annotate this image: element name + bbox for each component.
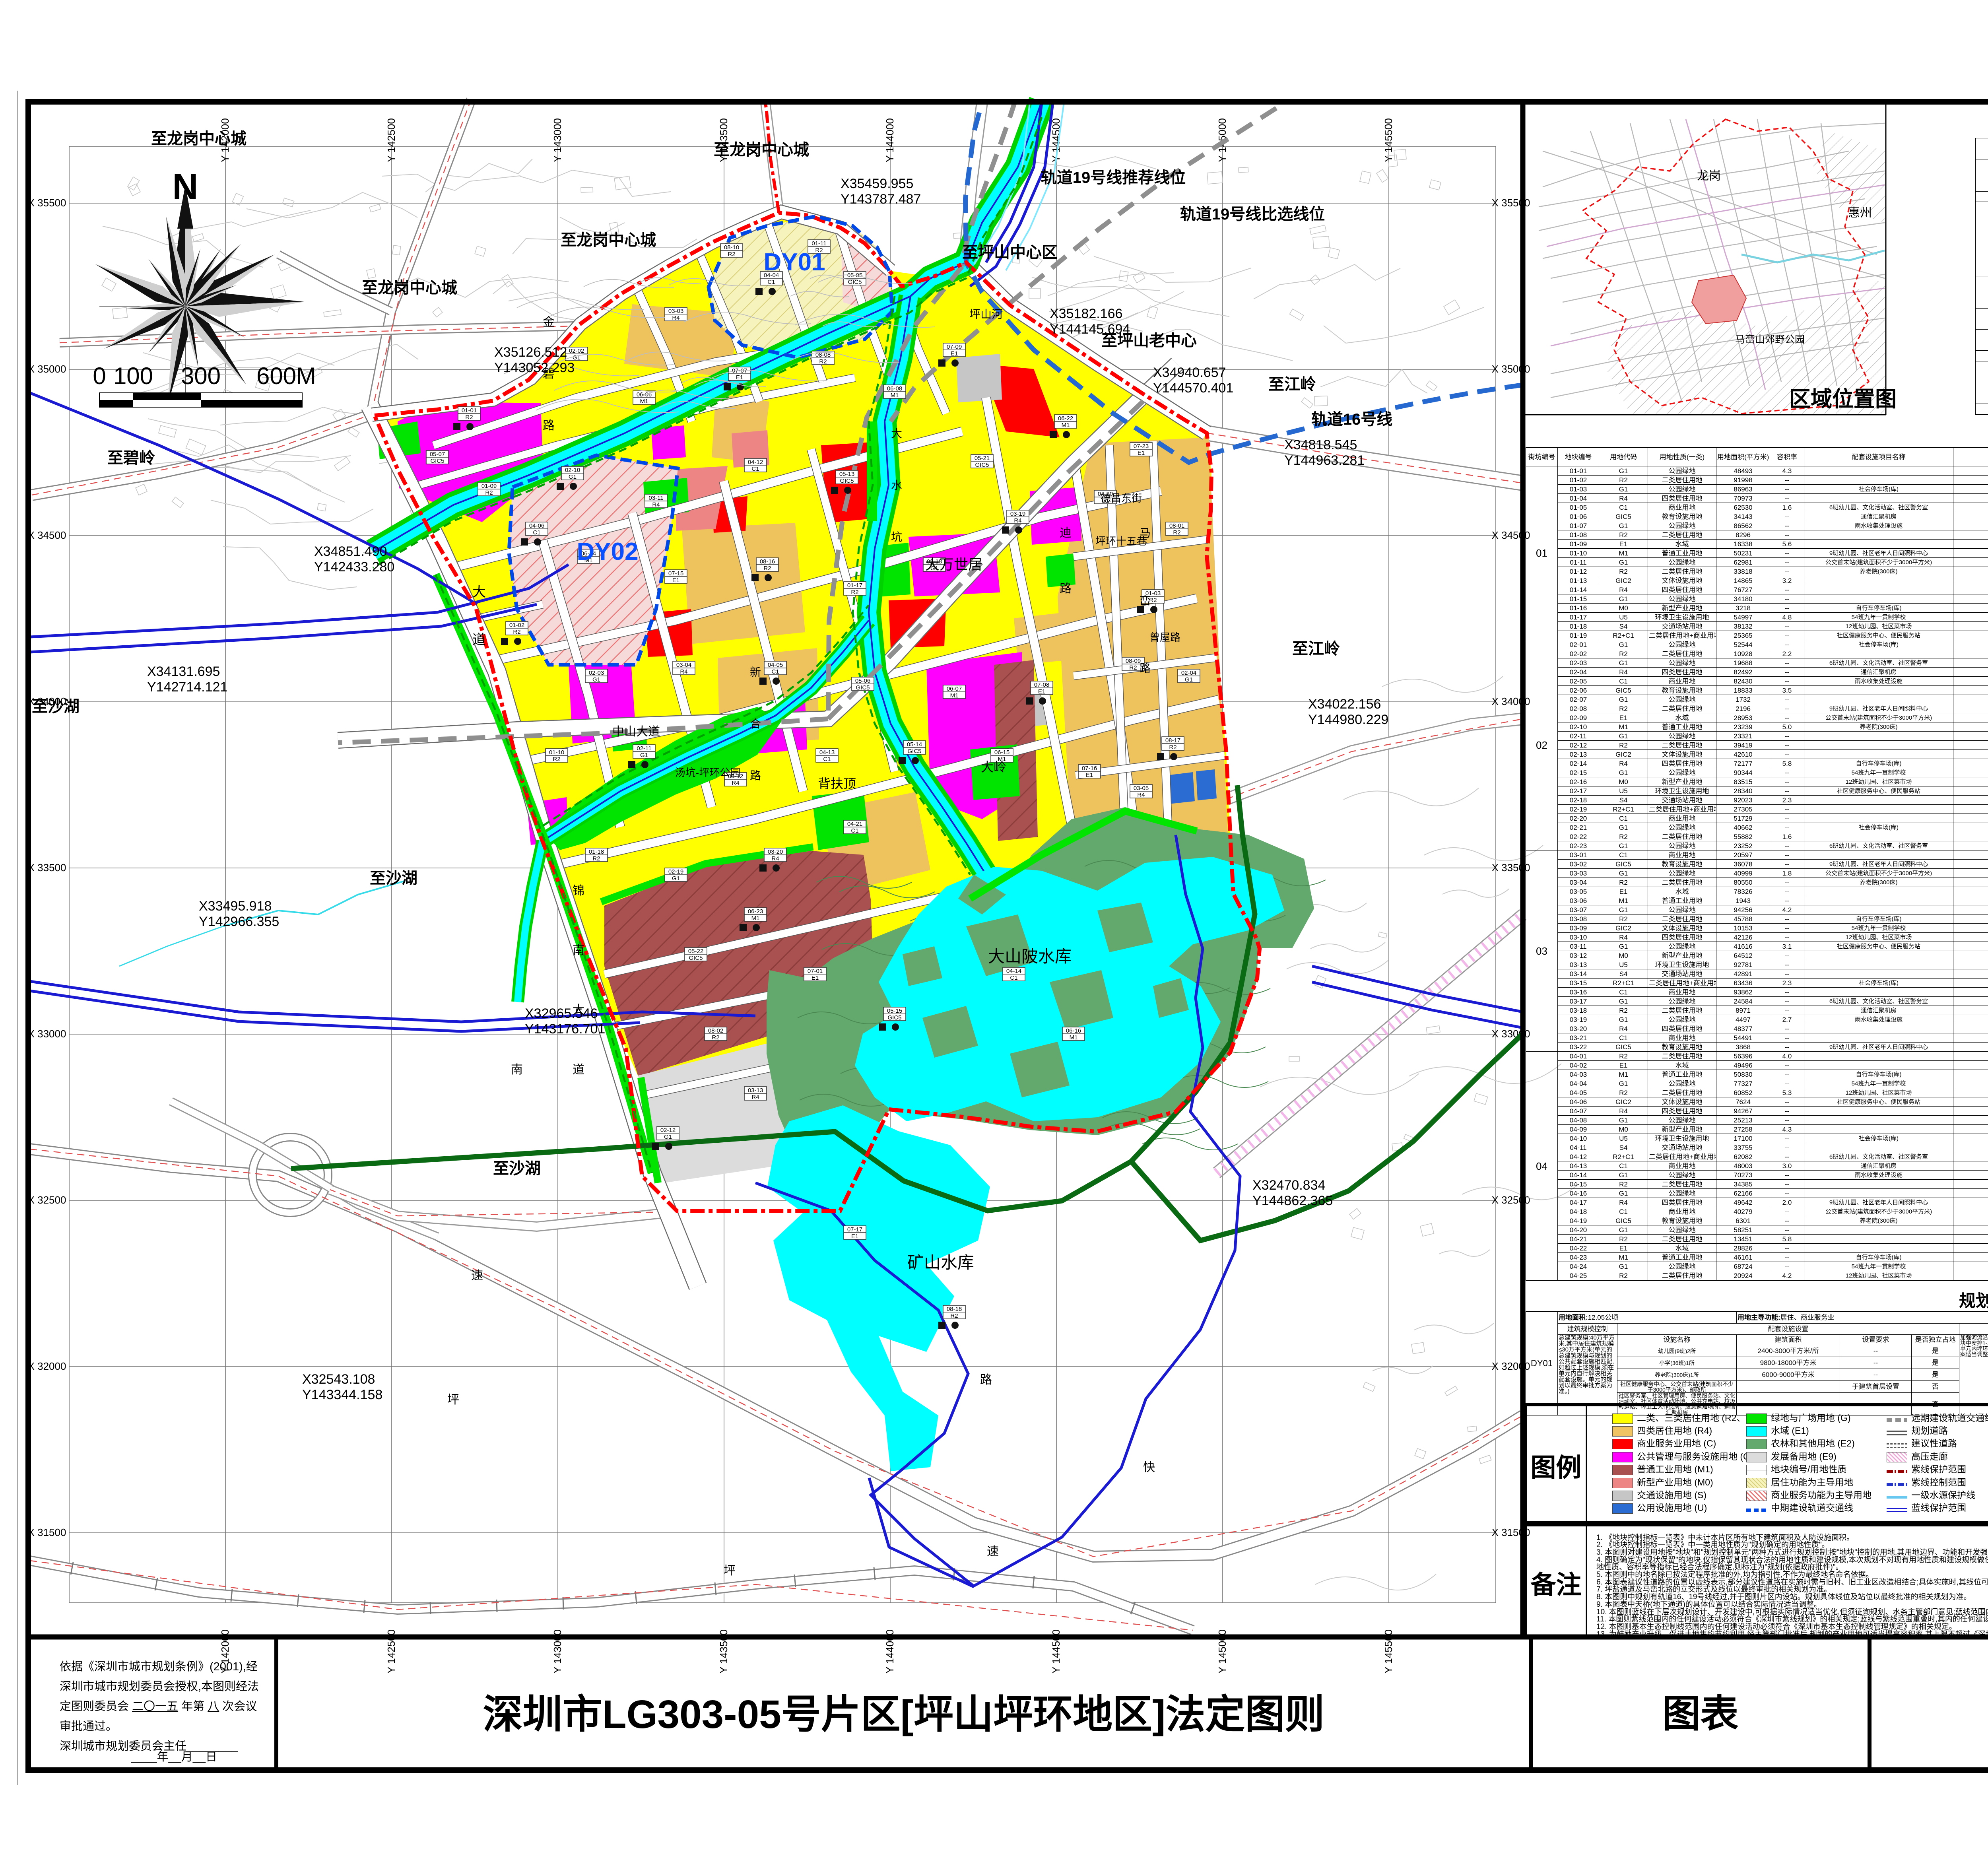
- svg-text:中山大道: 中山大道: [612, 725, 660, 738]
- svg-text:E1: E1: [672, 577, 679, 584]
- svg-text:轨道19号线比选线位: 轨道19号线比选线位: [1180, 206, 1325, 223]
- svg-text:Y144963.281: Y144963.281: [1284, 453, 1365, 468]
- svg-text:05-07: 05-07: [430, 451, 445, 458]
- svg-text:X35182.166: X35182.166: [1050, 306, 1122, 321]
- svg-text:G1: G1: [569, 474, 577, 480]
- svg-text:GIC5: GIC5: [887, 1014, 901, 1021]
- svg-text:路: 路: [980, 1373, 992, 1386]
- svg-text:06-15: 06-15: [994, 749, 1010, 756]
- svg-text:300: 300: [181, 363, 221, 389]
- svg-text:Y144570.401: Y144570.401: [1153, 381, 1233, 396]
- svg-text:Y144980.229: Y144980.229: [1308, 712, 1388, 727]
- svg-text:08-10: 08-10: [724, 244, 739, 251]
- svg-text:07-08: 07-08: [1034, 681, 1049, 688]
- svg-text:峦: 峦: [1140, 594, 1151, 607]
- svg-text:05-21: 05-21: [975, 455, 990, 462]
- svg-text:R2: R2: [1129, 664, 1137, 671]
- svg-text:X34940.657: X34940.657: [1153, 365, 1226, 380]
- svg-text:08-17: 08-17: [1165, 737, 1180, 744]
- svg-text:07-09: 07-09: [947, 344, 962, 350]
- svg-text:04-05: 04-05: [768, 662, 783, 668]
- svg-text:02-02: 02-02: [569, 348, 584, 354]
- svg-text:04-12: 04-12: [748, 459, 763, 466]
- svg-text:08-16: 08-16: [760, 558, 775, 565]
- svg-text:C1: C1: [751, 466, 759, 472]
- svg-text:02-11: 02-11: [637, 745, 651, 752]
- svg-text:坪: 坪: [447, 1393, 459, 1406]
- svg-text:Y142433.280: Y142433.280: [314, 559, 394, 575]
- svg-text:R2: R2: [712, 1034, 719, 1041]
- svg-text:05-06: 05-06: [855, 678, 870, 684]
- svg-text:Y143176.701: Y143176.701: [525, 1021, 605, 1037]
- svg-text:X32965.546: X32965.546: [525, 1006, 598, 1021]
- svg-text:马峦山郊野公园: 马峦山郊野公园: [1735, 334, 1805, 345]
- svg-text:锦: 锦: [573, 884, 584, 897]
- svg-text:速: 速: [471, 1269, 483, 1282]
- svg-text:大万世居: 大万世居: [925, 556, 982, 573]
- svg-text:M1: M1: [1062, 422, 1070, 429]
- svg-text:R2: R2: [851, 589, 858, 596]
- svg-text:04-13: 04-13: [819, 749, 835, 756]
- svg-text:Y142714.121: Y142714.121: [147, 680, 227, 695]
- svg-text:02-12: 02-12: [660, 1127, 676, 1134]
- svg-text:05-22: 05-22: [688, 948, 703, 955]
- svg-text:路: 路: [543, 419, 555, 432]
- svg-text:金: 金: [543, 316, 555, 329]
- svg-text:R4: R4: [1014, 517, 1021, 524]
- svg-text:至江岭: 至江岭: [1292, 640, 1340, 658]
- svg-text:南: 南: [573, 944, 584, 957]
- svg-text:X 34500: X 34500: [28, 529, 66, 541]
- svg-text:轨道16号线: 轨道16号线: [1311, 411, 1393, 428]
- svg-text:03-13: 03-13: [748, 1087, 763, 1094]
- svg-text:06-06: 06-06: [637, 391, 652, 398]
- svg-text:水: 水: [891, 479, 902, 491]
- svg-text:02-04: 02-04: [1181, 670, 1196, 676]
- svg-text:X34022.156: X34022.156: [1308, 697, 1381, 712]
- svg-text:04-14: 04-14: [1006, 968, 1021, 975]
- svg-text:至龙岗中心城: 至龙岗中心城: [714, 141, 809, 159]
- svg-text:E1: E1: [1038, 688, 1045, 695]
- svg-text:大岭: 大岭: [981, 760, 1006, 774]
- svg-text:E1: E1: [1138, 450, 1145, 456]
- svg-text:路: 路: [750, 769, 761, 782]
- svg-text:DY02: DY02: [577, 538, 638, 565]
- svg-text:Y143787.487: Y143787.487: [841, 192, 921, 207]
- svg-text:06-23: 06-23: [748, 908, 763, 915]
- svg-text:X34131.695: X34131.695: [147, 664, 220, 679]
- svg-text:X34818.545: X34818.545: [1284, 437, 1357, 452]
- svg-text:至沙湖: 至沙湖: [493, 1160, 541, 1177]
- svg-text:X33495.918: X33495.918: [199, 899, 272, 914]
- svg-text:速: 速: [987, 1545, 999, 1558]
- svg-text:R2: R2: [950, 1312, 958, 1319]
- svg-text:至龙岗中心城: 至龙岗中心城: [151, 130, 247, 148]
- svg-text:X32470.834: X32470.834: [1252, 1178, 1325, 1193]
- svg-text:R4: R4: [672, 315, 679, 321]
- svg-text:R2: R2: [728, 251, 735, 258]
- svg-text:0: 0: [93, 363, 106, 389]
- svg-text:E1: E1: [812, 975, 819, 981]
- svg-text:碧: 碧: [543, 367, 555, 381]
- svg-text:01-17: 01-17: [847, 582, 862, 589]
- svg-text:道: 道: [472, 632, 486, 647]
- svg-text:路: 路: [1060, 582, 1072, 595]
- svg-text:N: N: [173, 167, 198, 207]
- svg-text:07-23: 07-23: [1134, 443, 1149, 450]
- svg-text:600M: 600M: [256, 363, 316, 389]
- svg-text:C1: C1: [1010, 975, 1017, 981]
- svg-text:08-02: 08-02: [708, 1027, 723, 1034]
- svg-text:03-04: 03-04: [676, 662, 691, 668]
- svg-text:M1: M1: [891, 392, 899, 399]
- svg-text:C1: C1: [771, 668, 779, 675]
- svg-text:C1: C1: [823, 756, 831, 763]
- svg-text:Y142966.355: Y142966.355: [199, 914, 279, 929]
- svg-text:曾屋路: 曾屋路: [1149, 631, 1180, 643]
- svg-text:01-11: 01-11: [812, 240, 826, 247]
- svg-text:Y 143000: Y 143000: [551, 118, 563, 162]
- svg-text:E1: E1: [851, 1233, 858, 1240]
- svg-text:E1: E1: [1086, 772, 1093, 779]
- svg-text:X 35500: X 35500: [28, 197, 66, 209]
- svg-text:X 32500: X 32500: [28, 1194, 66, 1206]
- svg-text:坑: 坑: [891, 531, 902, 543]
- svg-text:02-10: 02-10: [565, 467, 580, 474]
- svg-text:G1: G1: [672, 875, 680, 882]
- svg-text:Y143052.293: Y143052.293: [494, 360, 575, 375]
- svg-text:C1: C1: [851, 827, 858, 834]
- svg-text:R4: R4: [751, 1094, 759, 1101]
- svg-text:R2: R2: [553, 756, 560, 763]
- svg-text:至龙岗中心城: 至龙岗中心城: [561, 231, 656, 249]
- svg-text:01-02: 01-02: [509, 622, 524, 629]
- svg-text:R2: R2: [763, 565, 771, 572]
- svg-text:X 32000: X 32000: [28, 1360, 66, 1372]
- svg-text:X32543.108: X32543.108: [302, 1372, 375, 1387]
- svg-text:08-01: 08-01: [1169, 522, 1184, 529]
- svg-text:M1: M1: [640, 398, 648, 405]
- svg-text:01-01: 01-01: [462, 407, 477, 414]
- svg-text:快: 快: [1143, 1461, 1155, 1474]
- svg-text:Y 142500: Y 142500: [385, 118, 397, 162]
- svg-text:R2: R2: [819, 358, 827, 365]
- svg-text:G1: G1: [592, 676, 600, 683]
- svg-text:GIC5: GIC5: [840, 478, 854, 484]
- svg-text:南: 南: [511, 1063, 523, 1076]
- svg-text:06-08: 06-08: [887, 385, 902, 392]
- svg-text:德昌东街: 德昌东街: [1101, 492, 1142, 504]
- svg-text:R4: R4: [771, 855, 779, 862]
- svg-text:大山陂水库: 大山陂水库: [988, 947, 1072, 966]
- svg-text:08-18: 08-18: [947, 1306, 962, 1312]
- svg-text:R2: R2: [1169, 744, 1176, 751]
- svg-text:DY01: DY01: [763, 249, 825, 276]
- svg-text:Y144145.694: Y144145.694: [1050, 322, 1130, 337]
- svg-text:G1: G1: [640, 752, 648, 759]
- svg-text:04-21: 04-21: [847, 821, 862, 827]
- svg-text:07-17: 07-17: [847, 1226, 862, 1233]
- svg-text:05-15: 05-15: [887, 1008, 902, 1014]
- svg-text:惠州: 惠州: [1848, 206, 1872, 219]
- svg-text:Y144862.365: Y144862.365: [1252, 1193, 1333, 1208]
- svg-text:GIC5: GIC5: [689, 955, 703, 961]
- svg-text:大: 大: [891, 427, 902, 440]
- svg-text:07-01: 07-01: [808, 968, 823, 975]
- svg-text:E1: E1: [951, 350, 958, 357]
- svg-text:05-13: 05-13: [839, 471, 854, 478]
- svg-text:02-03: 02-03: [589, 670, 604, 676]
- svg-text:X 33000: X 33000: [28, 1028, 66, 1040]
- svg-text:03-19: 03-19: [1010, 511, 1025, 517]
- svg-text:R4: R4: [1137, 792, 1145, 798]
- svg-text:迪: 迪: [1060, 526, 1072, 540]
- svg-text:X 35000: X 35000: [28, 363, 66, 375]
- svg-text:R2: R2: [465, 414, 473, 421]
- svg-text:C1: C1: [767, 279, 775, 285]
- svg-text:08-09: 08-09: [1126, 658, 1141, 664]
- svg-text:新: 新: [750, 666, 761, 678]
- svg-text:G1: G1: [1185, 676, 1193, 683]
- svg-text:02-19: 02-19: [668, 868, 683, 875]
- svg-text:Y 144000: Y 144000: [884, 118, 896, 162]
- svg-text:坪: 坪: [724, 1564, 736, 1577]
- svg-text:合: 合: [750, 718, 761, 730]
- svg-text:R4: R4: [652, 501, 660, 508]
- svg-text:06-16: 06-16: [1066, 1027, 1081, 1034]
- svg-text:至碧岭: 至碧岭: [107, 449, 155, 467]
- svg-text:01-10: 01-10: [549, 749, 564, 756]
- svg-text:G1: G1: [664, 1134, 672, 1140]
- svg-text:Y143344.158: Y143344.158: [302, 1387, 382, 1402]
- svg-text:龙岗: 龙岗: [1697, 169, 1721, 183]
- svg-text:坪山河: 坪山河: [969, 308, 1003, 320]
- svg-text:R4: R4: [680, 668, 687, 675]
- svg-text:06-07: 06-07: [947, 685, 962, 692]
- svg-text:M1: M1: [950, 692, 959, 699]
- svg-text:大: 大: [573, 1004, 584, 1017]
- svg-text:至江岭: 至江岭: [1268, 376, 1316, 393]
- svg-text:道: 道: [573, 1063, 584, 1076]
- svg-text:GIC5: GIC5: [975, 462, 989, 468]
- svg-text:07-16: 07-16: [1082, 765, 1097, 772]
- svg-text:背扶顶: 背扶顶: [818, 777, 856, 791]
- svg-text:R4: R4: [732, 780, 739, 786]
- svg-text:01-09: 01-09: [481, 483, 497, 489]
- svg-text:R2: R2: [592, 855, 600, 862]
- svg-text:GIC5: GIC5: [856, 684, 870, 691]
- svg-text:X35459.955: X35459.955: [841, 176, 913, 191]
- svg-text:X 31500: X 31500: [28, 1526, 66, 1538]
- svg-text:至坪山中心区: 至坪山中心区: [962, 244, 1058, 261]
- svg-text:C1: C1: [533, 529, 540, 536]
- svg-text:07-15: 07-15: [668, 570, 683, 577]
- svg-text:GIC5: GIC5: [430, 458, 444, 464]
- svg-text:R2: R2: [513, 629, 520, 635]
- svg-text:100: 100: [113, 363, 153, 389]
- svg-text:坪环十五巷: 坪环十五巷: [1095, 535, 1147, 547]
- svg-text:E1: E1: [736, 374, 743, 381]
- svg-text:06-22: 06-22: [1058, 415, 1073, 422]
- svg-text:X 33500: X 33500: [28, 862, 66, 874]
- svg-text:04-06: 04-06: [529, 522, 544, 529]
- svg-text:R2: R2: [485, 489, 493, 496]
- svg-text:大: 大: [472, 584, 486, 600]
- svg-text:路: 路: [1140, 662, 1151, 674]
- svg-text:X35126.512: X35126.512: [494, 345, 567, 360]
- svg-text:03-05: 03-05: [1134, 785, 1149, 792]
- svg-text:至沙湖: 至沙湖: [32, 698, 80, 715]
- svg-text:03-20: 03-20: [768, 848, 783, 855]
- svg-text:03-11: 03-11: [648, 495, 663, 501]
- svg-text:R2: R2: [1173, 529, 1180, 536]
- svg-text:至龙岗中心城: 至龙岗中心城: [362, 279, 457, 297]
- svg-text:GIC5: GIC5: [848, 279, 862, 285]
- svg-text:汤坑-坪环公园: 汤坑-坪环公园: [675, 767, 741, 779]
- svg-text:01-18: 01-18: [589, 848, 604, 855]
- svg-text:03-03: 03-03: [668, 308, 683, 315]
- svg-text:M1: M1: [751, 915, 760, 922]
- svg-text:GIC5: GIC5: [907, 748, 921, 755]
- svg-text:至沙湖: 至沙湖: [370, 870, 417, 887]
- svg-text:M1: M1: [1070, 1034, 1078, 1041]
- svg-text:区域位置图: 区域位置图: [1789, 387, 1897, 411]
- svg-text:矿山水库: 矿山水库: [907, 1253, 974, 1272]
- svg-text:X34851.490: X34851.490: [314, 544, 387, 559]
- svg-text:轨道19号线推荐线位: 轨道19号线推荐线位: [1041, 169, 1186, 186]
- svg-text:05-14: 05-14: [907, 741, 922, 748]
